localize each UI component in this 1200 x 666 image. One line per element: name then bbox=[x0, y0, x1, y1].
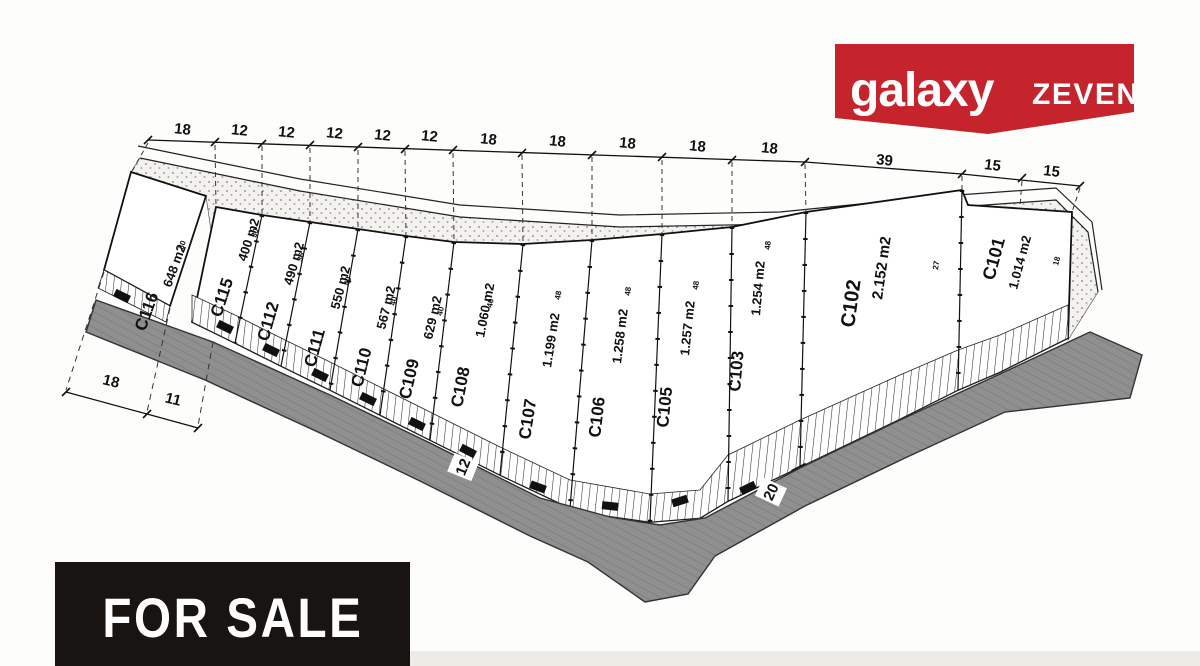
bottom-faint-strip bbox=[402, 651, 1200, 666]
dim-label: 15 bbox=[983, 156, 1002, 175]
dim-label: 18 bbox=[760, 139, 778, 158]
dim-label: 18 bbox=[688, 137, 706, 156]
dim-label: 15 bbox=[1042, 162, 1061, 181]
for-sale-banner: FOR SALE bbox=[55, 562, 410, 666]
dim-label: 11 bbox=[163, 389, 183, 409]
logo-banner: galaxy ZEVEN bbox=[835, 44, 1140, 134]
dim-label: 18 bbox=[618, 134, 636, 153]
site-plan-page: 12 20 18 bbox=[0, 0, 1200, 666]
site-plan: 12 20 18 bbox=[0, 0, 1200, 666]
dim-label: 12 bbox=[420, 127, 438, 146]
plot-id: C103 bbox=[725, 350, 747, 392]
dim-label: 39 bbox=[875, 151, 893, 170]
dim-label: 18 bbox=[479, 130, 497, 149]
for-sale-label: FOR SALE bbox=[102, 587, 363, 649]
dim-label: 12 bbox=[325, 124, 343, 143]
plot-depth: 48 bbox=[623, 286, 633, 296]
plots-outline bbox=[192, 190, 1072, 522]
dim-label: 12 bbox=[277, 123, 295, 142]
plot-depth: 48 bbox=[763, 240, 773, 250]
plot-depth: 27 bbox=[931, 260, 941, 271]
plot-depth: 48 bbox=[691, 280, 701, 290]
dim-label: 12 bbox=[373, 126, 391, 145]
dim-label: 12 bbox=[230, 121, 248, 140]
logo-text-secondary: ZEVEN bbox=[1032, 78, 1140, 111]
dim-label: 18 bbox=[548, 132, 566, 151]
logo-text-primary: galaxy bbox=[850, 64, 995, 117]
dim-label: 18 bbox=[101, 371, 121, 392]
dim-label: 18 bbox=[173, 120, 191, 139]
